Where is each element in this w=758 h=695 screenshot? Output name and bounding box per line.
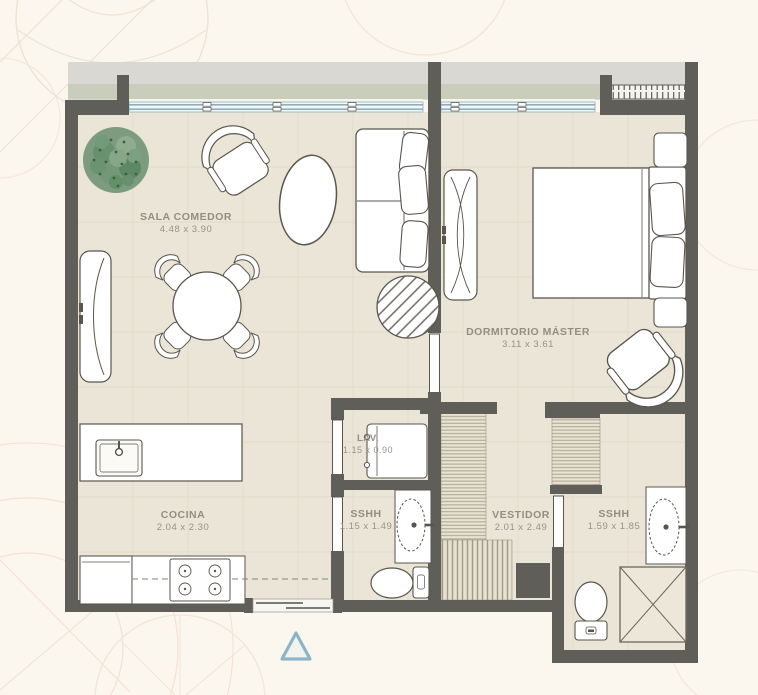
room-name: SALA COMEDOR (140, 211, 232, 223)
vanity-sink-1 (395, 490, 434, 563)
room-name: COCINA (157, 509, 210, 521)
room-label-vestidor: VESTIDOR 2.01 x 2.49 (492, 509, 550, 533)
room-label-sala-comedor: SALA COMEDOR 4.48 x 3.90 (140, 211, 232, 235)
room-label-lavanderia: LAV. 1.15 x 0.90 (343, 433, 393, 455)
room-label-dormitorio-master: DORMITORIO MÁSTER 3.11 x 3.61 (466, 326, 590, 350)
double-bed (533, 167, 686, 299)
sideboard (79, 251, 111, 382)
room-dims: 1.15 x 1.49 (340, 521, 393, 532)
room-label-sshh-2: SSHH 1.59 x 1.85 (588, 508, 641, 532)
floor-plan: SALA COMEDOR 4.48 x 3.90 DORMITORIO MÁST… (0, 0, 758, 695)
room-name: VESTIDOR (492, 509, 550, 521)
room-name: SSHH (340, 508, 393, 520)
shower (620, 567, 686, 642)
room-dims: 2.04 x 2.30 (157, 522, 210, 533)
coffee-table (377, 276, 439, 338)
balcony-railing (611, 85, 686, 99)
room-name: DORMITORIO MÁSTER (466, 326, 590, 338)
vanity-sink-2 (646, 487, 689, 564)
toilet-1 (371, 567, 429, 598)
room-label-sshh-1: SSHH 1.15 x 1.49 (340, 508, 393, 532)
toilet-2 (575, 582, 607, 640)
wardrobe-panel (442, 170, 477, 300)
room-dims: 2.01 x 2.49 (492, 522, 550, 533)
room-dims: 3.11 x 3.61 (466, 339, 590, 350)
sliding-entry-door (253, 599, 333, 612)
fridge (80, 556, 132, 604)
room-name: SSHH (588, 508, 641, 520)
room-dims: 4.48 x 3.90 (140, 224, 232, 235)
sofa (356, 129, 429, 272)
floor-plan-drawing (0, 0, 758, 695)
room-name: LAV. (343, 433, 393, 444)
room-label-cocina: COCINA 2.04 x 2.30 (157, 509, 210, 533)
room-dims: 1.59 x 1.85 (588, 521, 641, 532)
kitchen-island (80, 424, 242, 481)
triangle-marker-icon (282, 633, 310, 659)
faucet-icon (116, 449, 123, 456)
room-dims: 1.15 x 0.90 (343, 445, 393, 455)
plant-icon (83, 127, 149, 193)
cooktop (170, 559, 230, 601)
window-band (129, 102, 595, 112)
